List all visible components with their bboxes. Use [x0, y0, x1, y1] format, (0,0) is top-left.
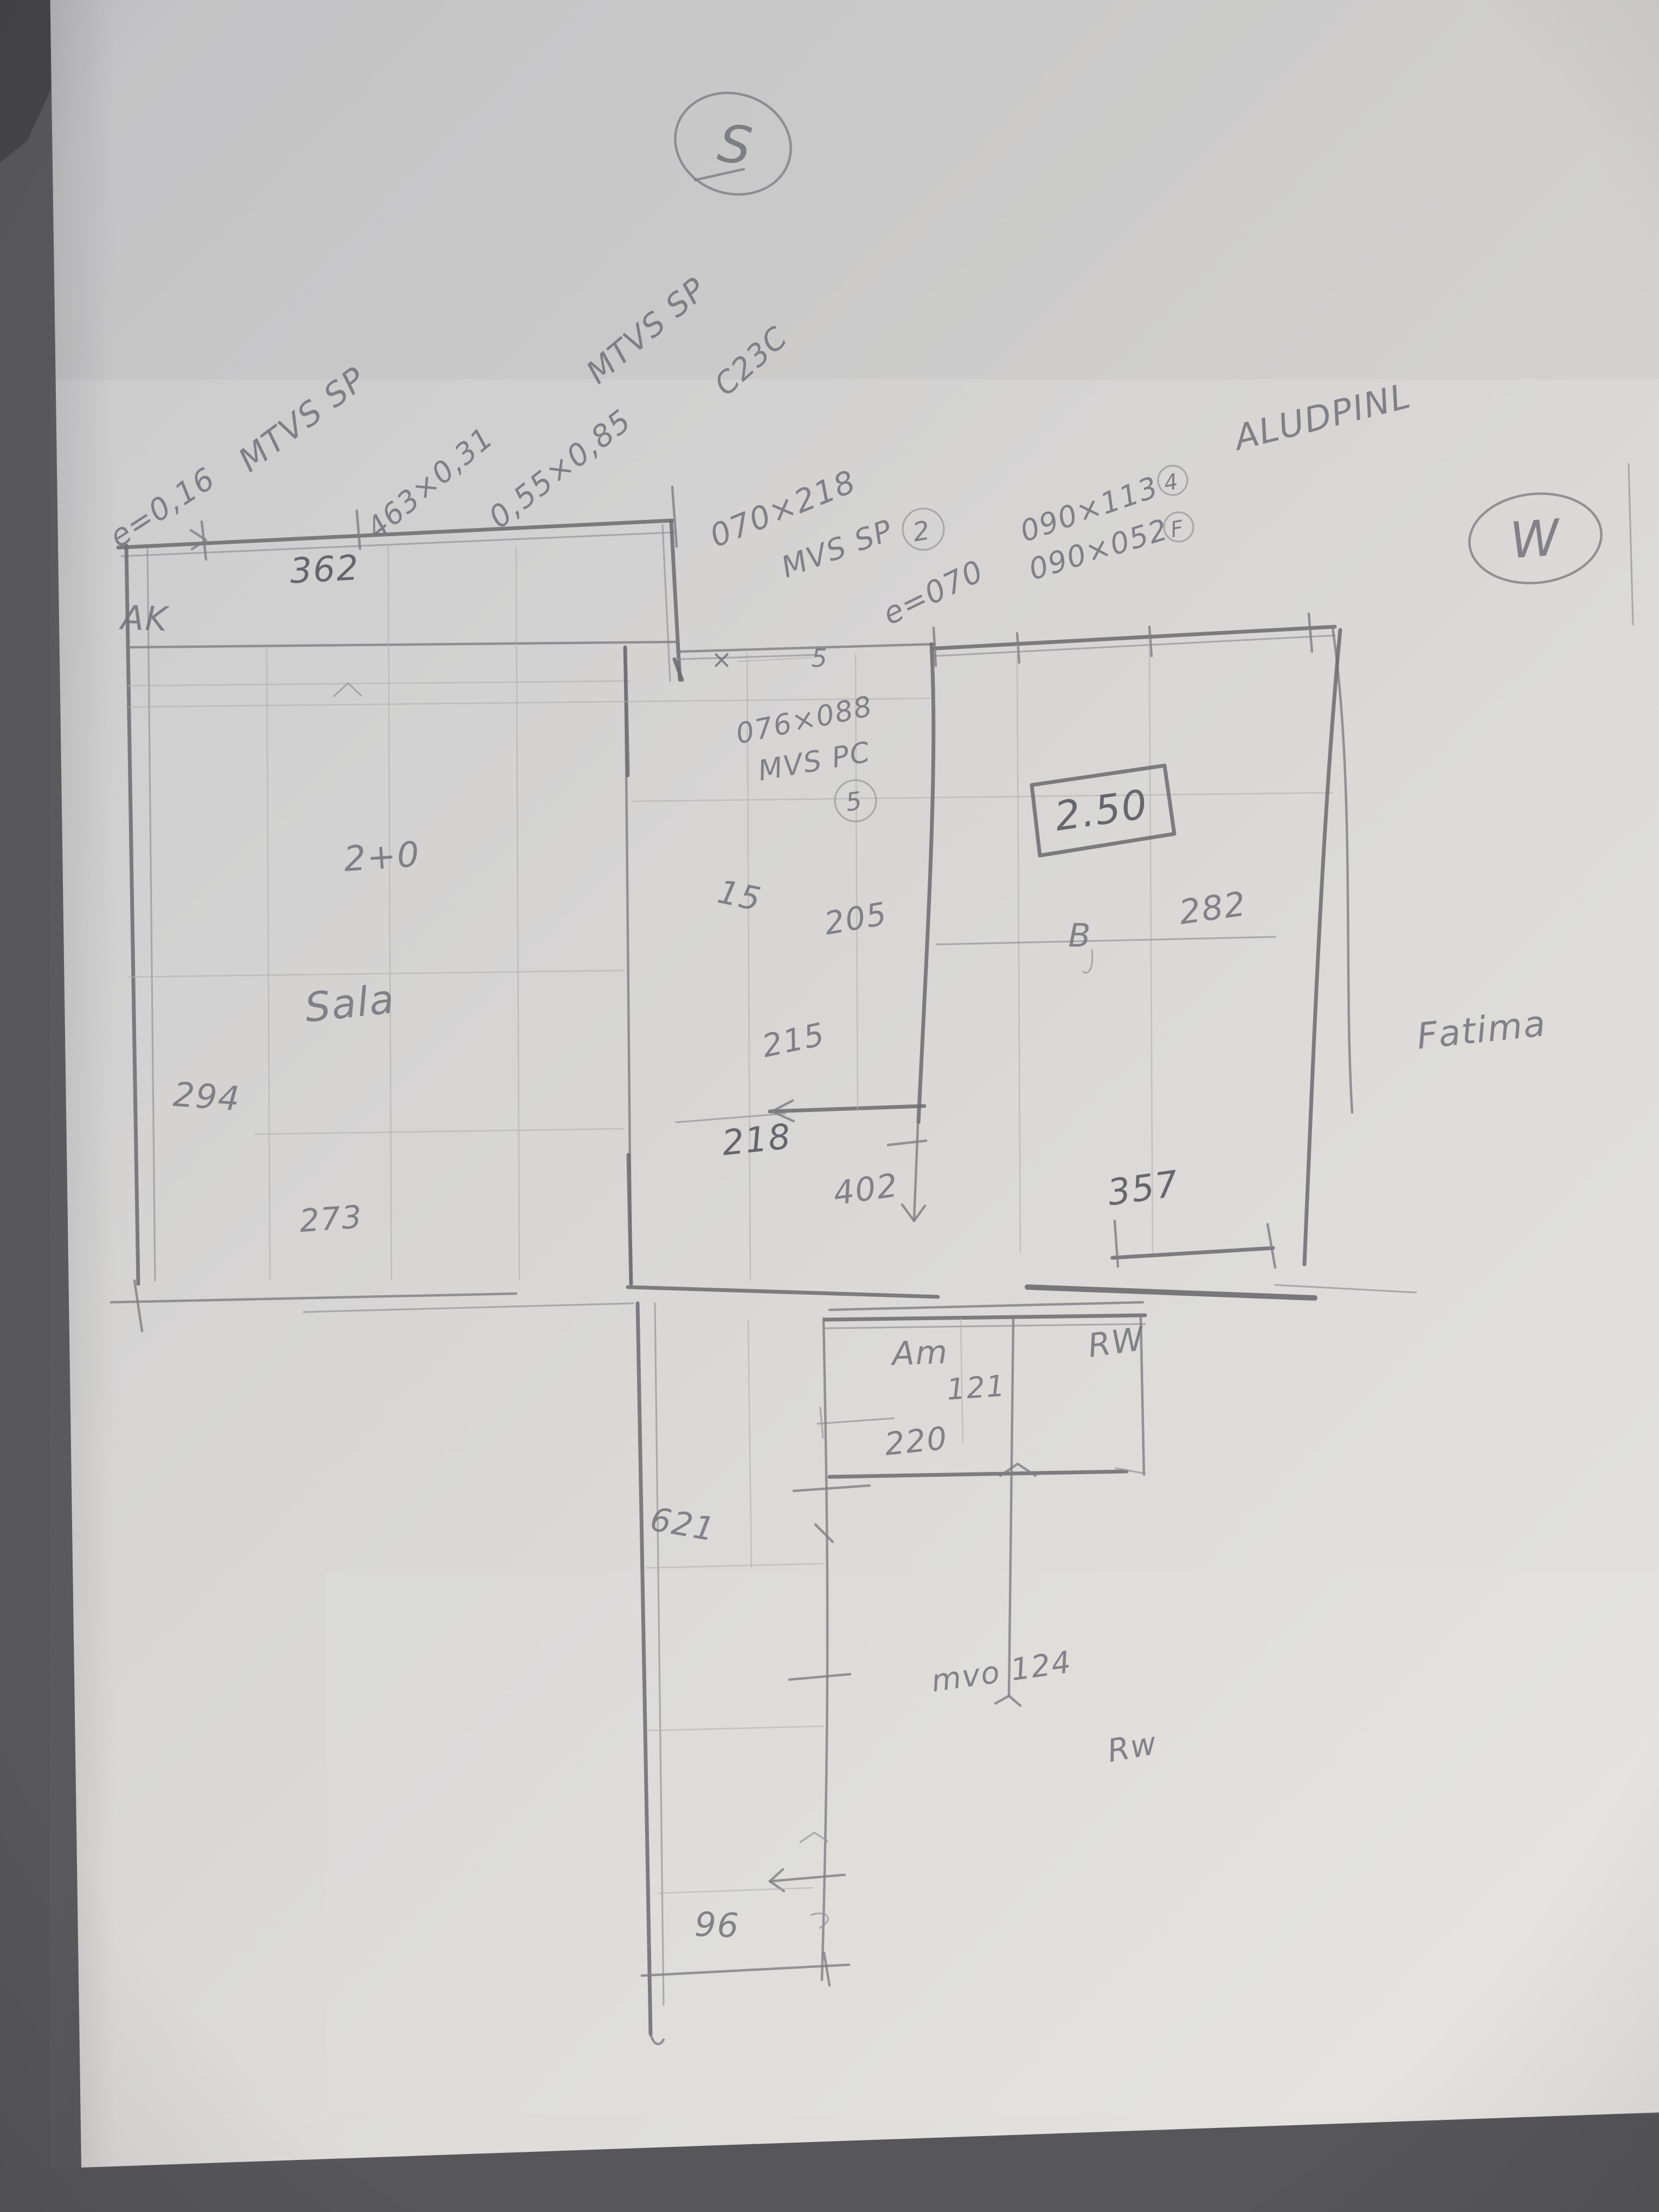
photo-of-sketch: S W e=0,16 MTVS SP 463×0,31 362 AK MTVS …	[0, 0, 1659, 2212]
photo-vignette	[0, 0, 1659, 2212]
